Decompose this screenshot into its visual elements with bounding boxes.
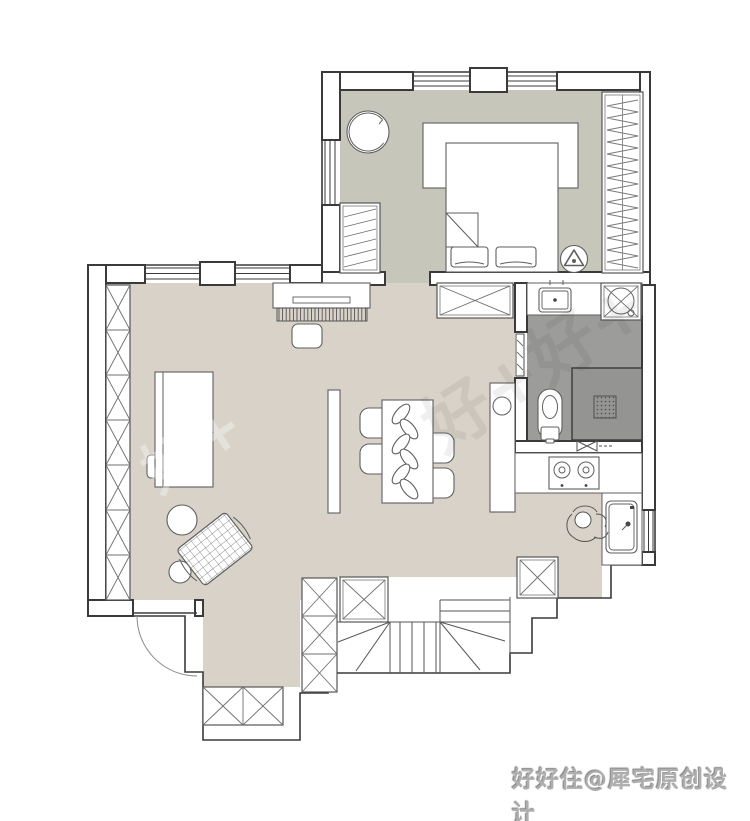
living-window-left-segment [145,268,200,279]
wall-pier [200,262,235,285]
wall [88,265,106,616]
small-wardrobe-icon [340,203,380,273]
screen-partition-icon [328,390,340,513]
pouf-large-icon [167,505,197,535]
bedroom-window-top-left [413,76,470,86]
ceiling-fan-icon [561,246,588,273]
living-window-right-segment [235,268,290,279]
door-swing-arc [137,616,197,676]
stair-box-cabinet-icon [340,577,388,622]
stair-winder-line [440,622,480,670]
stair-winder-line [356,622,390,671]
wardrobe-icon [602,92,643,273]
shoe-cabinet-icon [203,687,283,725]
stair-winder-line [338,622,390,642]
gas-stove-icon [549,457,599,489]
wall [290,265,322,283]
wall [88,600,133,616]
wall [322,72,340,140]
piano-bench-icon [292,324,322,348]
floor-drain-icon [594,396,616,418]
floor-plan-page: 好+好+ 好+ 好好住@犀宅原创设计 [0,0,750,821]
stair-column-cabinet-icon [302,578,337,692]
wall [557,72,650,90]
wall-pier [470,68,507,92]
kitchen-sink-icon [606,501,637,553]
credit-watermark: 好好住@犀宅原创设计 [512,760,750,821]
wall [642,552,655,565]
stair-winder-line [440,622,505,641]
bedroom-window-left [325,140,335,205]
bedroom-window-top-right [507,76,557,86]
hall-cabinet-icon [437,283,513,318]
storage-column-icon [106,285,130,600]
round-chair-icon [347,111,389,153]
floor-plan-svg: 好+好+ 好+ [0,0,750,821]
wall [322,205,340,272]
wall [515,283,527,332]
entry-door-icon [133,613,197,676]
refrigerator-box-icon [517,557,558,598]
bed-icon [423,123,578,272]
kitchen-window [644,510,653,552]
